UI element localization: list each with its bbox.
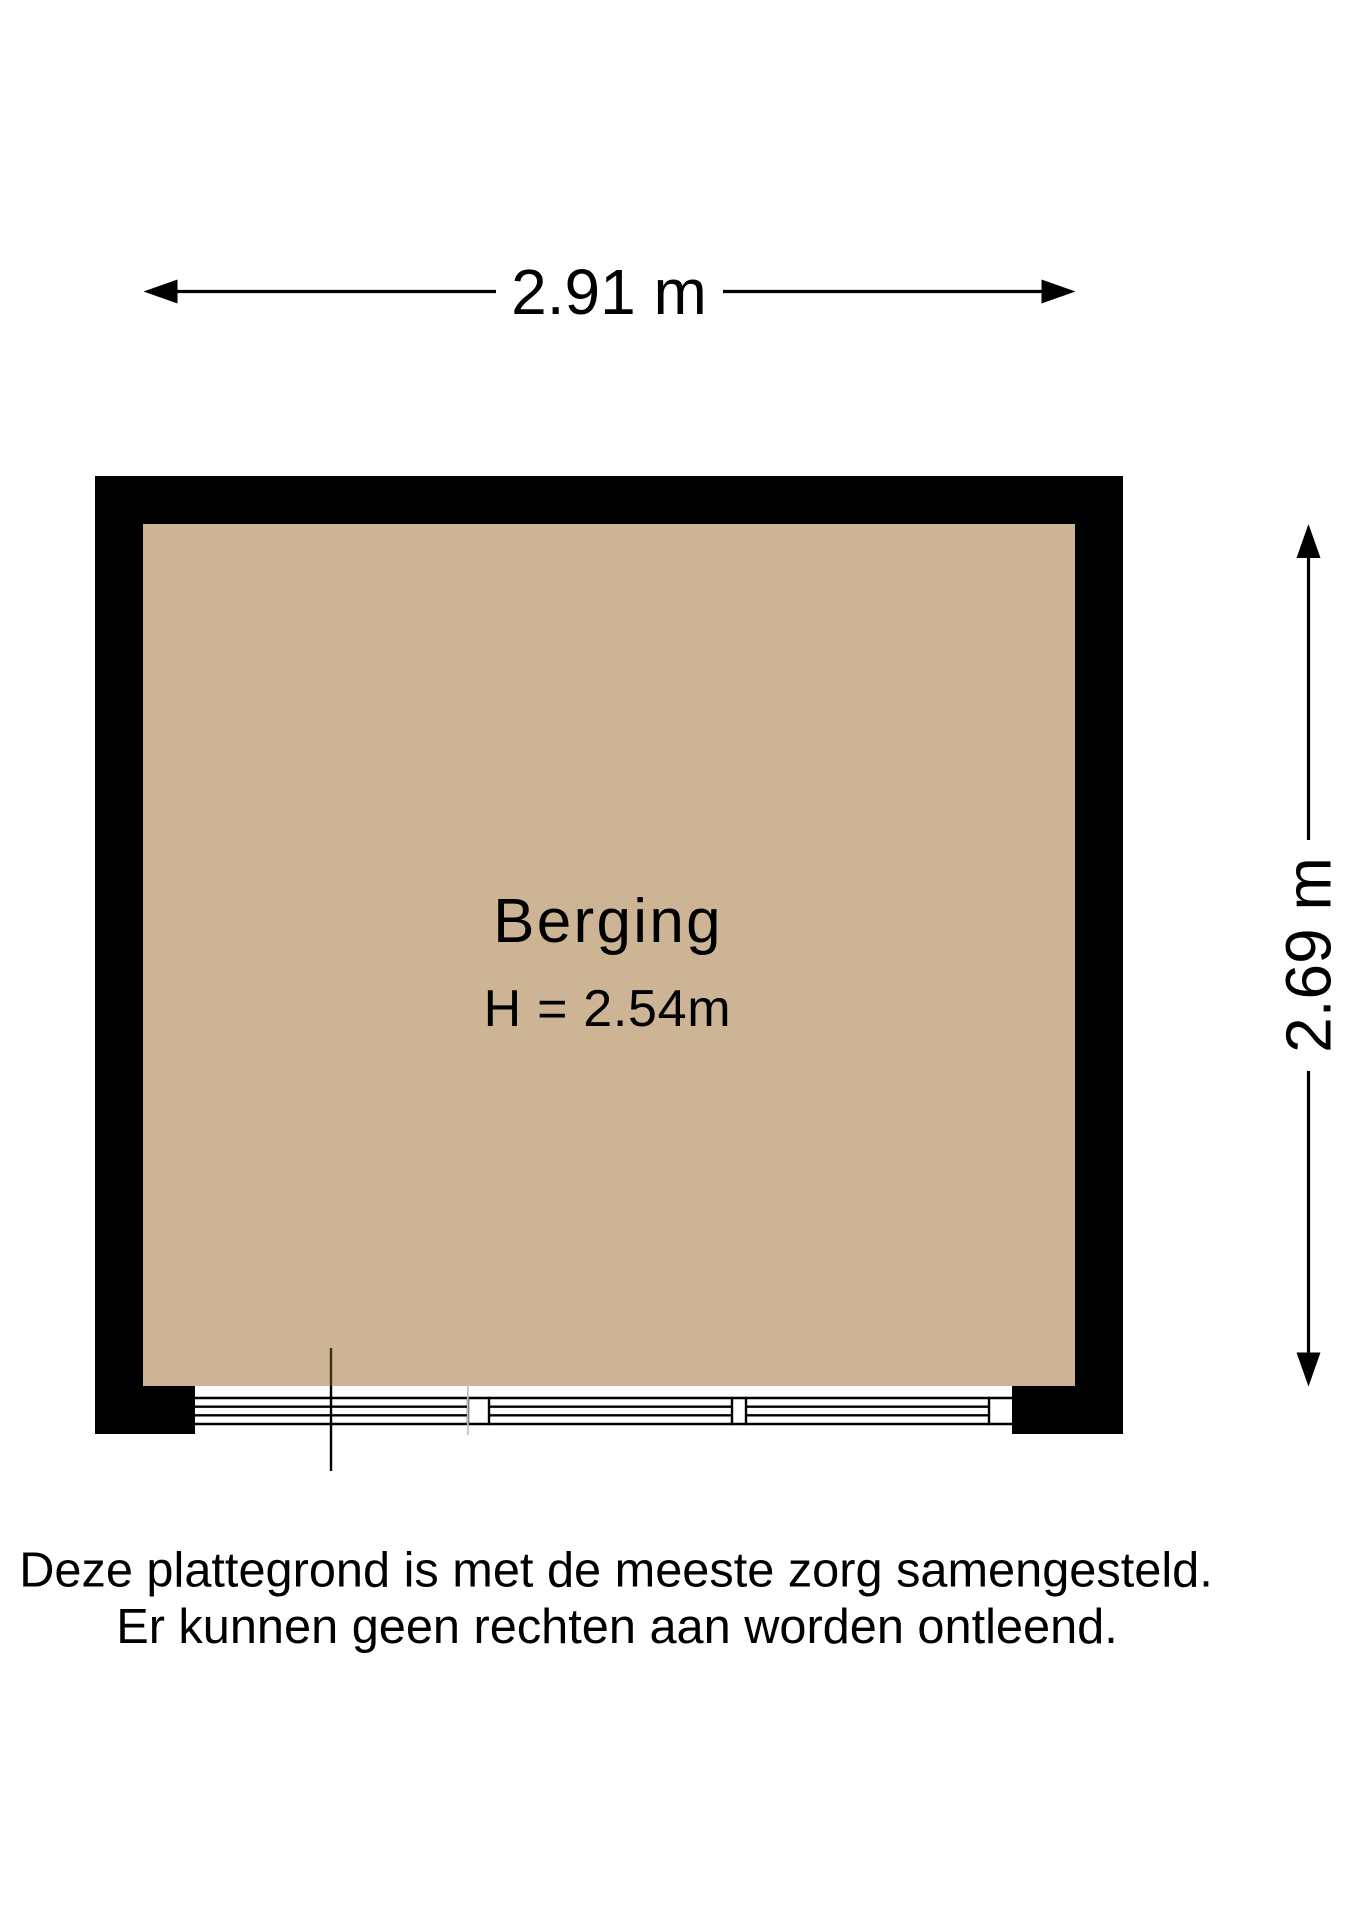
svg-text:Er kunnen geen rechten aan wor: Er kunnen geen rechten aan worden ontlee… [116,1600,1118,1654]
svg-text:2.91 m: 2.91 m [511,256,707,328]
svg-text:Berging: Berging [493,887,723,956]
svg-text:Deze plattegrond is met de mee: Deze plattegrond is met de meeste zorg s… [19,1544,1213,1598]
svg-text:2.69 m: 2.69 m [1273,857,1345,1053]
svg-text:H = 2.54m: H = 2.54m [484,980,732,1038]
